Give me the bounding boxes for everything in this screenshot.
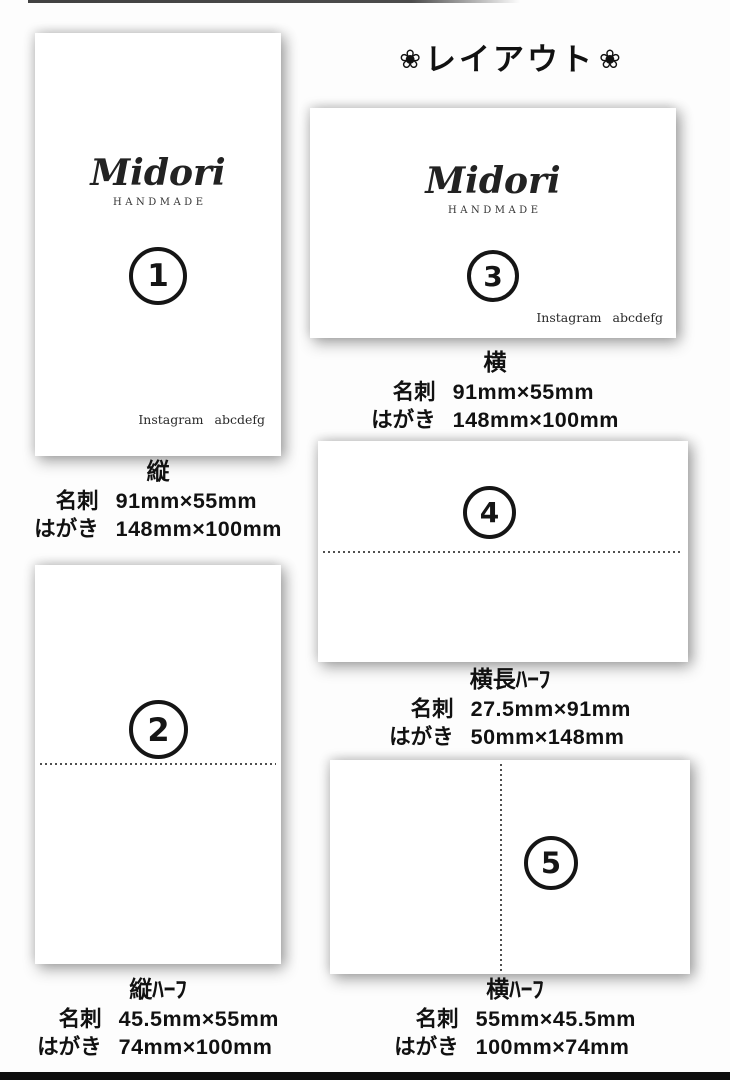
instagram-handle: abcdefg (215, 412, 265, 427)
number-badge-3: 3 (467, 250, 519, 302)
brand-name: Midori (310, 163, 676, 201)
number-badge-1: 1 (129, 247, 187, 305)
page-title: ❀レイアウト❀ (330, 34, 690, 79)
badge-number-5: 5 (541, 846, 561, 880)
layout-card-2-vertical-half: 2 (35, 565, 281, 964)
meishi-label: 名刺 (394, 1005, 459, 1033)
hagaki-size: 148mm×100mm (453, 406, 619, 434)
meishi-label: 名刺 (389, 695, 454, 723)
fold-line-horizontal (40, 763, 276, 765)
layout-card-5-horizontal-half: 5 (330, 760, 690, 974)
meishi-label: 名刺 (34, 487, 99, 515)
layout-card-4-horizontal-half: 4 (318, 441, 688, 662)
hagaki-size: 50mm×148mm (471, 723, 631, 751)
number-badge-4: 4 (463, 486, 516, 539)
instagram-handle: abcdefg (613, 310, 663, 325)
fold-line-vertical (500, 763, 502, 971)
badge-number-3: 3 (483, 260, 502, 293)
hagaki-label: はがき (37, 1033, 102, 1061)
orientation-label-3: 横 (330, 348, 660, 377)
hagaki-label: はがき (389, 723, 454, 751)
orientation-label-5: 横ﾊｰﾌ (345, 975, 685, 1004)
number-badge-2: 2 (129, 700, 188, 759)
layout-guide-page: ❀レイアウト❀ Midori HANDMADE 1 Instagramabcde… (0, 0, 730, 1080)
flower-icon-left: ❀ (395, 44, 425, 74)
page-title-text: レイアウト (425, 42, 595, 77)
badge-number-2: 2 (147, 711, 169, 749)
instagram-credit: Instagramabcdefg (138, 412, 265, 427)
caption-card-5: 横ﾊｰﾌ 名刺 55mm×45.5mm はがき 100mm×74mm (345, 975, 685, 1061)
instagram-credit: Instagramabcdefg (536, 310, 663, 325)
brand-name: Midori (35, 155, 281, 193)
layout-card-3-horizontal: Midori HANDMADE 3 Instagramabcdefg (310, 108, 676, 338)
hagaki-size: 74mm×100mm (119, 1033, 279, 1061)
meishi-size: 91mm×55mm (453, 378, 619, 406)
brand-logo: Midori HANDMADE (310, 163, 676, 216)
top-edge-line (28, 0, 520, 3)
meishi-size: 91mm×55mm (116, 487, 282, 515)
meishi-label: 名刺 (371, 378, 436, 406)
badge-number-4: 4 (480, 496, 499, 529)
caption-card-4: 横長ﾊｰﾌ 名刺 27.5mm×91mm はがき 50mm×148mm (345, 665, 675, 751)
brand-logo: Midori HANDMADE (35, 155, 281, 208)
meishi-label: 名刺 (37, 1005, 102, 1033)
hagaki-label: はがき (394, 1033, 459, 1061)
instagram-label: Instagram (536, 310, 601, 325)
hagaki-size: 148mm×100mm (116, 515, 282, 543)
badge-number-1: 1 (147, 258, 169, 294)
brand-subtitle: HANDMADE (310, 205, 676, 216)
orientation-label-4: 横長ﾊｰﾌ (345, 665, 675, 694)
hagaki-size: 100mm×74mm (476, 1033, 636, 1061)
hagaki-label: はがき (371, 406, 436, 434)
orientation-label-1: 縦 (20, 457, 296, 486)
fold-line-horizontal (323, 551, 683, 553)
caption-card-1: 縦 名刺 91mm×55mm はがき 148mm×100mm (20, 457, 296, 543)
number-badge-5: 5 (524, 836, 578, 890)
flower-icon-right: ❀ (595, 44, 625, 74)
hagaki-label: はがき (34, 515, 99, 543)
size-table-3: 名刺 91mm×55mm はがき 148mm×100mm (371, 378, 619, 434)
layout-card-1-vertical: Midori HANDMADE 1 Instagramabcdefg (35, 33, 281, 456)
size-table-1: 名刺 91mm×55mm はがき 148mm×100mm (34, 487, 282, 543)
brand-subtitle: HANDMADE (35, 197, 281, 208)
size-table-2: 名刺 45.5mm×55mm はがき 74mm×100mm (37, 1005, 279, 1061)
meishi-size: 27.5mm×91mm (471, 695, 631, 723)
meishi-size: 55mm×45.5mm (476, 1005, 636, 1033)
caption-card-3: 横 名刺 91mm×55mm はがき 148mm×100mm (330, 348, 660, 434)
bottom-edge-bar (0, 1072, 730, 1080)
size-table-5: 名刺 55mm×45.5mm はがき 100mm×74mm (394, 1005, 636, 1061)
orientation-label-2: 縦ﾊｰﾌ (5, 975, 311, 1004)
meishi-size: 45.5mm×55mm (119, 1005, 279, 1033)
size-table-4: 名刺 27.5mm×91mm はがき 50mm×148mm (389, 695, 631, 751)
caption-card-2: 縦ﾊｰﾌ 名刺 45.5mm×55mm はがき 74mm×100mm (5, 975, 311, 1061)
instagram-label: Instagram (138, 412, 203, 427)
